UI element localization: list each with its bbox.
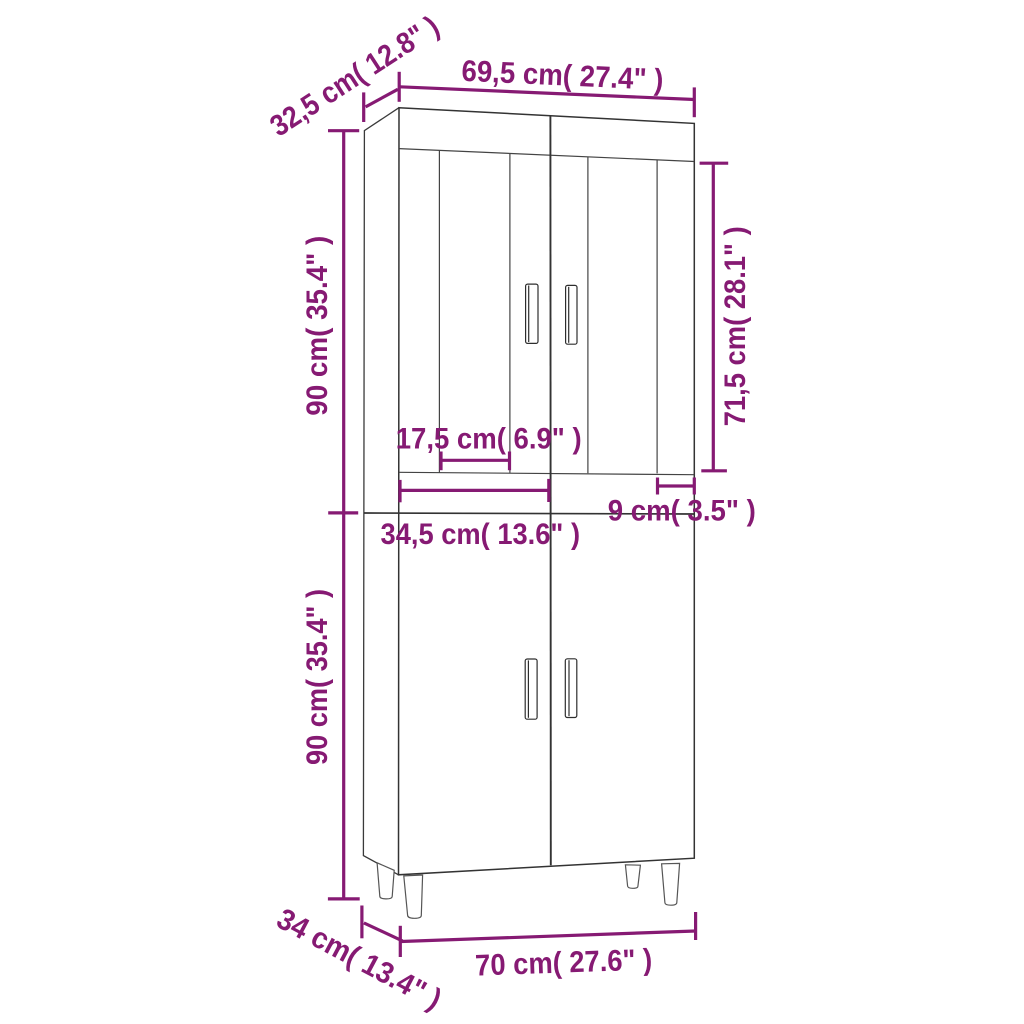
svg-text:71,5 cm( 28.1" ): 71,5 cm( 28.1" ) bbox=[719, 226, 752, 426]
svg-text:34 cm( 13.4" ): 34 cm( 13.4" ) bbox=[271, 902, 446, 1016]
svg-text:90 cm( 35.4" ): 90 cm( 35.4" ) bbox=[301, 589, 334, 765]
svg-text:17,5 cm( 6.9" ): 17,5 cm( 6.9" ) bbox=[396, 423, 582, 456]
svg-text:9 cm( 3.5" ): 9 cm( 3.5" ) bbox=[608, 495, 756, 528]
svg-text:90 cm( 35.4" ): 90 cm( 35.4" ) bbox=[301, 236, 334, 416]
svg-text:34,5 cm( 13.6" ): 34,5 cm( 13.6" ) bbox=[381, 518, 581, 551]
svg-text:70 cm( 27.6" ): 70 cm( 27.6" ) bbox=[475, 943, 653, 982]
svg-text:32,5 cm( 12.8" ): 32,5 cm( 12.8" ) bbox=[264, 10, 445, 143]
